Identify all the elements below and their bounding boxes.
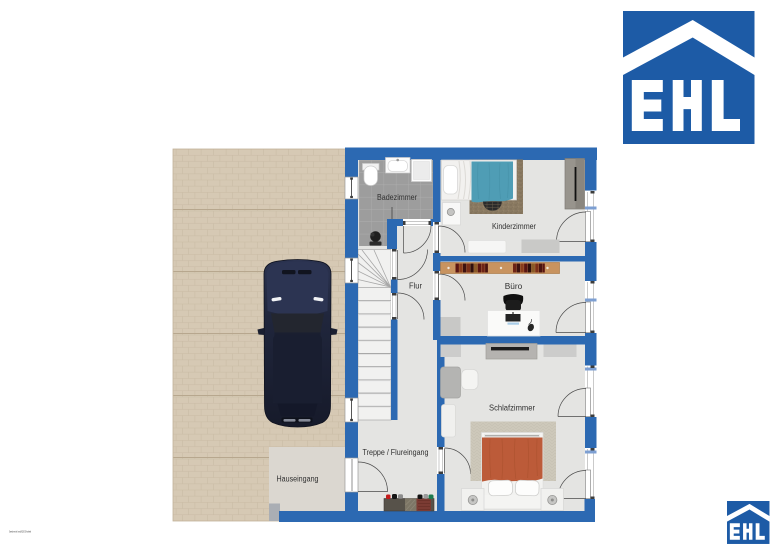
svg-text:Flur: Flur xyxy=(409,281,422,290)
svg-text:Büro: Büro xyxy=(505,282,523,291)
svg-text:Gezeichnet mit ImmoCADO 3D Arc: Gezeichnet mit ImmoCADO 3D Architekt xyxy=(9,530,31,534)
svg-text:Kinderzimmer: Kinderzimmer xyxy=(492,222,536,231)
svg-text:Schlafzimmer: Schlafzimmer xyxy=(489,403,535,412)
svg-text:Badezimmer: Badezimmer xyxy=(377,193,417,202)
svg-text:Hauseingang: Hauseingang xyxy=(277,474,319,483)
svg-text:Treppe / Flureingang: Treppe / Flureingang xyxy=(363,448,429,457)
